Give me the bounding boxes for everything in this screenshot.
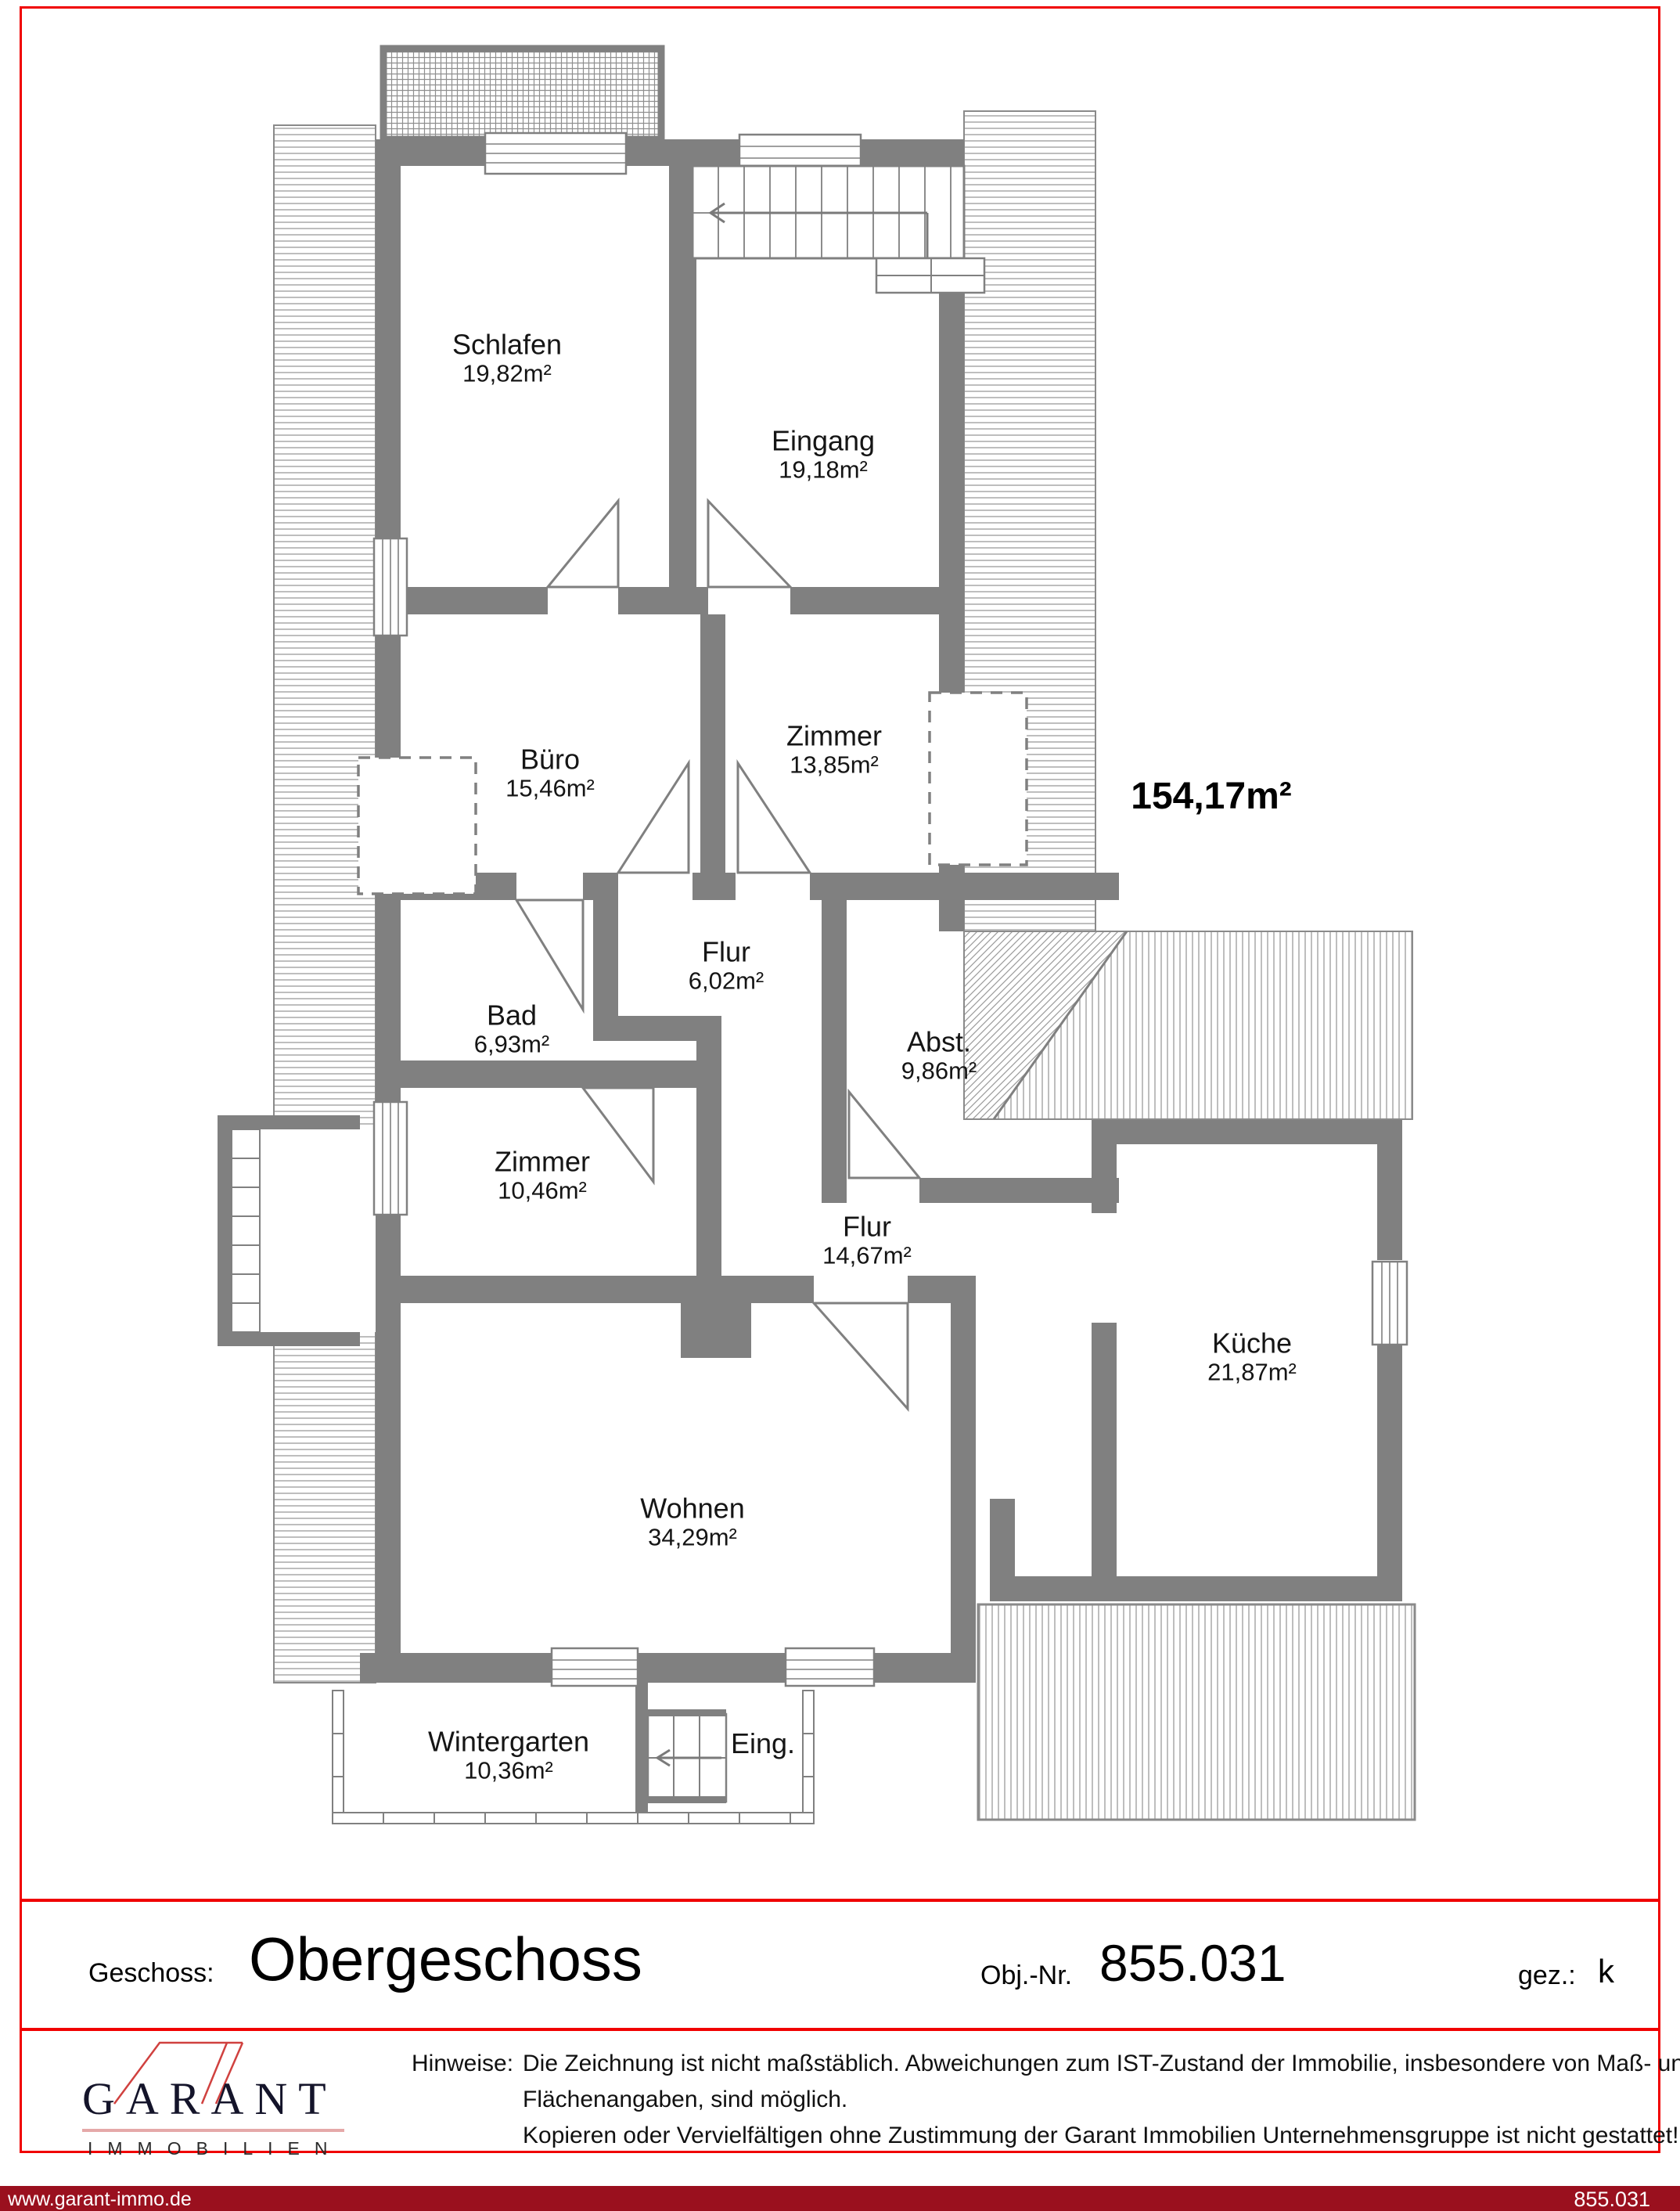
window-kueche — [1372, 1262, 1407, 1345]
door-bad — [516, 900, 583, 1010]
exterior-stairs-left — [218, 1115, 376, 1346]
dormer-zimmer — [930, 693, 1027, 865]
floor-plan-drawing — [0, 0, 1680, 1878]
hinweise-line2: Flächenangaben, sind möglich. — [523, 2087, 847, 2113]
divider-title-notes — [20, 2028, 1660, 2031]
hinweise-line3: Kopieren oder Vervielfältigen ohne Zusti… — [523, 2123, 1678, 2149]
obj-nr-value: 855.031 — [1099, 1933, 1286, 1993]
obj-nr-label: Obj.-Nr. — [980, 1961, 1072, 1991]
door-schlafen — [548, 501, 618, 587]
hinweise-label: Hinweise: — [412, 2051, 513, 2077]
room-label-zimmer-13: Zimmer13,85m² — [786, 720, 882, 779]
room-label-flur-14: Flur14,67m² — [822, 1211, 912, 1269]
room-label-eing: Eing. — [731, 1728, 795, 1759]
divider-plan-title — [20, 1899, 1660, 1902]
total-area-label: 154,17m² — [1131, 776, 1291, 818]
footer-object-ref: 855.031 — [1574, 2188, 1650, 2211]
window-left-schlafen — [374, 538, 407, 636]
logo-underline — [82, 2129, 344, 2132]
window-wohnen-right — [786, 1648, 874, 1686]
window-wohnen-left — [552, 1648, 638, 1686]
gez-label: gez.: — [1518, 1961, 1576, 1991]
frame-left — [20, 6, 22, 2153]
room-label-wintergarten: Wintergarten10,36m² — [428, 1726, 589, 1784]
window-top-schlafen — [485, 133, 626, 174]
top-dormer-balcony — [383, 49, 661, 139]
room-label-wohnen: Wohnen34,29m² — [640, 1493, 744, 1551]
room-label-bad: Bad6,93m² — [474, 999, 549, 1058]
room-label-buero: Büro15,46m² — [505, 744, 595, 802]
room-label-schlafen: Schlafen19,82m² — [452, 329, 562, 387]
room-label-kueche: Küche21,87m² — [1207, 1327, 1297, 1386]
logo-subtitle: IMMOBILIEN — [88, 2138, 342, 2159]
bottom-right-roof-band — [978, 1604, 1415, 1820]
dormer-buero — [358, 758, 476, 894]
logo-wordmark: GARANT — [82, 2072, 337, 2125]
footer-bar: www.garant-immo.de 855.031 — [0, 2186, 1680, 2211]
door-buero — [618, 763, 689, 873]
gez-value: k — [1598, 1953, 1614, 1990]
hip-roof — [964, 931, 1412, 1119]
room-label-zimmer-10: Zimmer10,46m² — [495, 1146, 590, 1205]
window-left-bad — [374, 1102, 407, 1215]
frame-right — [1658, 6, 1660, 2153]
floorplan-sheet: Schlafen19,82m² Eingang19,18m² Büro15,46… — [0, 0, 1680, 2211]
room-label-eingang: Eingang19,18m² — [772, 425, 875, 484]
room-label-abst: Abst.9,86m² — [901, 1026, 977, 1085]
room-label-flur-6: Flur6,02m² — [689, 936, 764, 995]
stair-landing — [876, 258, 984, 293]
door-zimmer10 — [583, 1088, 653, 1182]
frame-top — [20, 6, 1660, 9]
door-abst — [849, 1092, 919, 1178]
hinweise-line1: Die Zeichnung ist nicht maßstäblich. Abw… — [523, 2051, 1680, 2077]
geschoss-value: Obergeschoss — [249, 1924, 642, 1995]
door-wohnen — [814, 1303, 908, 1409]
door-zimmer13 — [738, 763, 810, 873]
door-eingang — [708, 501, 790, 587]
left-roof-strip — [274, 125, 376, 1683]
geschoss-label: Geschoss: — [88, 1958, 214, 1989]
staircase-eing — [648, 1709, 726, 1803]
footer-url: www.garant-immo.de — [8, 2188, 192, 2211]
staircase-eingang — [693, 166, 984, 293]
